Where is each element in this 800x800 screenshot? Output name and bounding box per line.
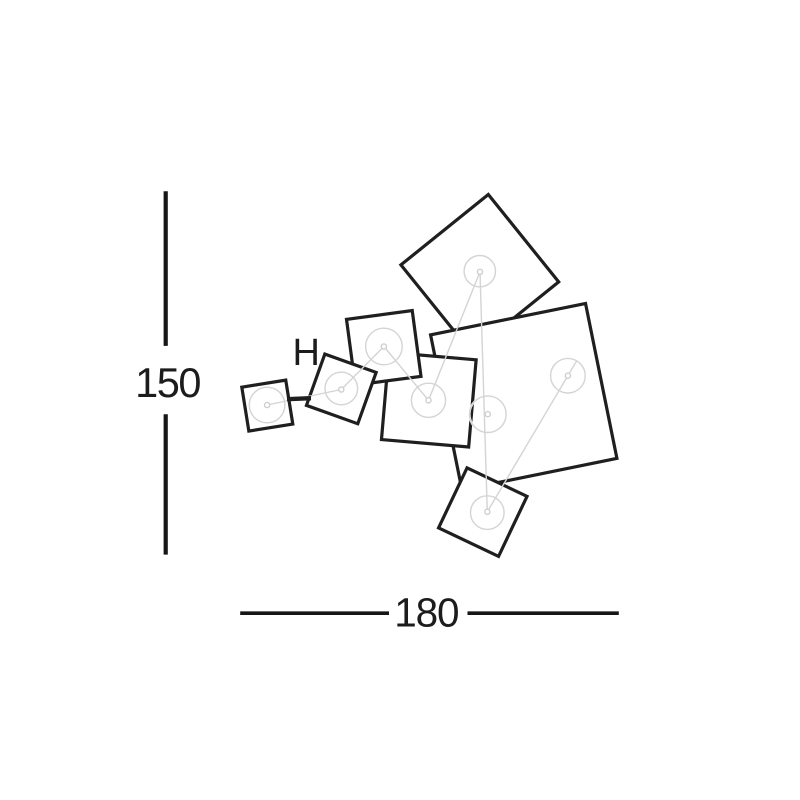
svg-text:150: 150 — [135, 359, 200, 406]
svg-text:180: 180 — [394, 590, 458, 636]
svg-text:H: H — [292, 332, 319, 374]
